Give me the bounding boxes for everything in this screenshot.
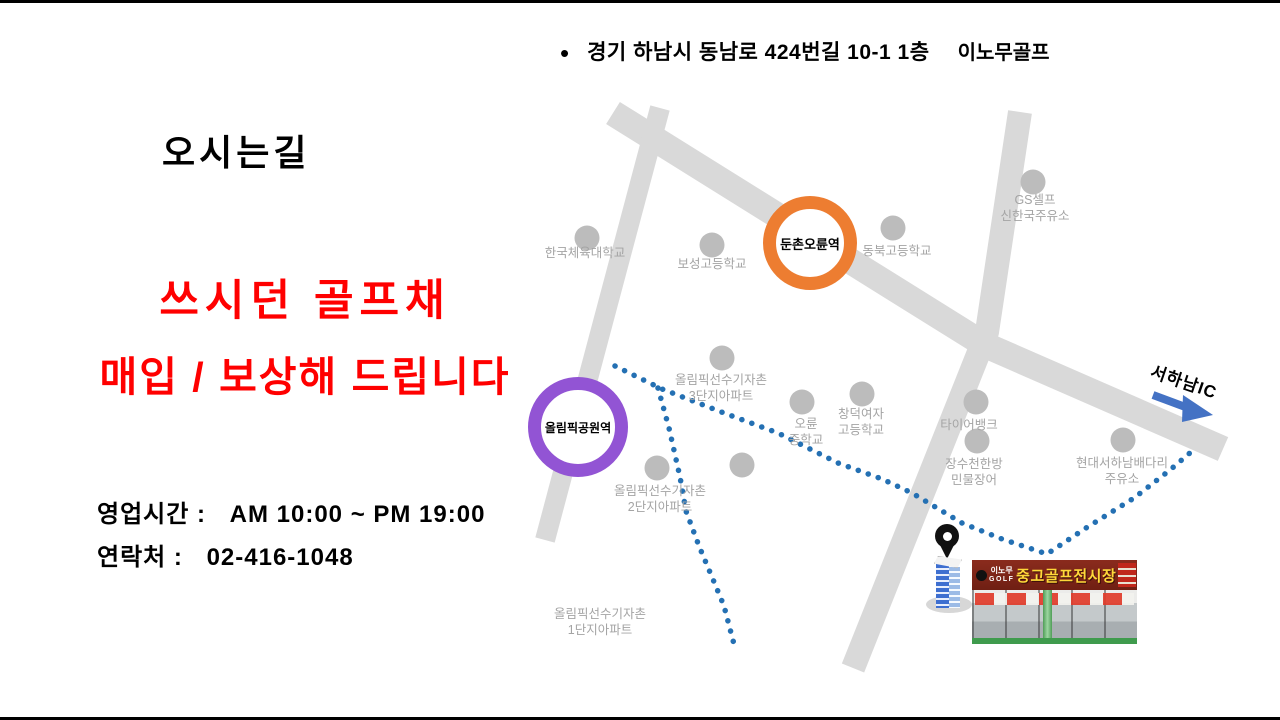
poi-label-dongbuk: 동북고등학교 xyxy=(862,243,931,259)
poi-dot-dongbuk xyxy=(881,216,906,241)
poi-dot-apt3 xyxy=(710,346,735,371)
poi-label-apt3: 올림픽선수기자촌 3단지아파트 xyxy=(675,372,767,404)
brand-name: 이노무골프 xyxy=(958,36,1050,65)
poi-label-apt2: 올림픽선수기자촌 2단지아파트 xyxy=(614,483,706,515)
storefront-photo: 이노무 GOLF 중고골프전시장 xyxy=(972,560,1137,644)
hours-label: 영업시간 : xyxy=(97,501,206,528)
bullet-icon: • xyxy=(560,40,569,66)
green-pillar xyxy=(1043,590,1052,644)
poi-label-knsu: 한국체육대학교 xyxy=(545,245,626,261)
contact-label: 연락처 : xyxy=(97,544,183,571)
hours-line: 영업시간 : AM 10:00 ~ PM 19:00 xyxy=(97,494,485,529)
address-text: 경기 하남시 동남로 424번길 10-1 1층 xyxy=(587,36,929,66)
building-icon-side xyxy=(949,567,960,608)
station-label: 올림픽공원역 xyxy=(543,418,613,437)
sign-side-panel xyxy=(1118,563,1136,587)
poi-label-boseong: 보성고등학교 xyxy=(677,256,746,272)
promo-text: 쓰시던 골프채 매입 / 보상해 드립니다 xyxy=(50,266,560,403)
sign-brand: 이노무 GOLF xyxy=(989,567,1014,583)
poi-dot-oryun-middle xyxy=(790,390,815,415)
golf-logo-icon xyxy=(976,570,987,581)
map-pin-hole xyxy=(943,532,952,541)
poi-dot-unlabeled xyxy=(730,453,755,478)
poi-label-hyundai-gas: 현대서하남배다리 주유소 xyxy=(1076,455,1168,487)
poi-label-oryun-middle: 오륜 중학교 xyxy=(789,416,824,448)
route-dotted-branch xyxy=(658,388,735,648)
contact-line: 연락처 : 02-416-1048 xyxy=(97,537,354,572)
storefront-sign: 이노무 GOLF 중고골프전시장 xyxy=(972,560,1137,590)
hours-value: AM 10:00 ~ PM 19:00 xyxy=(230,501,486,528)
poi-dot-apt2 xyxy=(645,456,670,481)
contact-value: 02-416-1048 xyxy=(207,544,354,571)
address-row: • 경기 하남시 동남로 424번길 10-1 1층 이노무골프 xyxy=(560,36,1050,66)
poi-label-changdeok: 창덕여자 고등학교 xyxy=(838,406,884,438)
directions-slide: { "slide": { "address_bullet": "•", "add… xyxy=(0,0,1280,720)
green-base xyxy=(972,638,1137,644)
poi-dot-tirebank xyxy=(964,390,989,415)
sign-title: 중고골프전시장 xyxy=(1014,565,1118,586)
poi-label-eel: 장수천한방 민물장어 xyxy=(945,456,1003,488)
station-label: 둔촌오륜역 xyxy=(778,233,842,254)
storefront-windows xyxy=(972,590,1137,644)
promo-line1: 쓰시던 골프채 xyxy=(50,266,560,328)
promo-line2: 매입 / 보상해 드립니다 xyxy=(50,343,560,403)
poi-dot-gs xyxy=(1021,170,1046,195)
station-ring-dunchon-oryun: 둔촌오륜역 xyxy=(763,196,857,290)
window-banners xyxy=(975,593,1134,605)
poi-dot-changdeok xyxy=(850,382,875,407)
page-title: 오시는길 xyxy=(162,124,310,176)
poi-label-tirebank: 타이어뱅크 xyxy=(940,417,998,433)
poi-dot-hyundai-gas xyxy=(1111,428,1136,453)
poi-label-gs: GS셀프 신한국주유소 xyxy=(1000,192,1069,224)
poi-label-apt1: 올림픽선수기자촌 1단지아파트 xyxy=(554,606,646,638)
road-left xyxy=(545,108,660,540)
building-icon xyxy=(936,564,949,608)
poi-dot-boseong xyxy=(700,233,725,258)
